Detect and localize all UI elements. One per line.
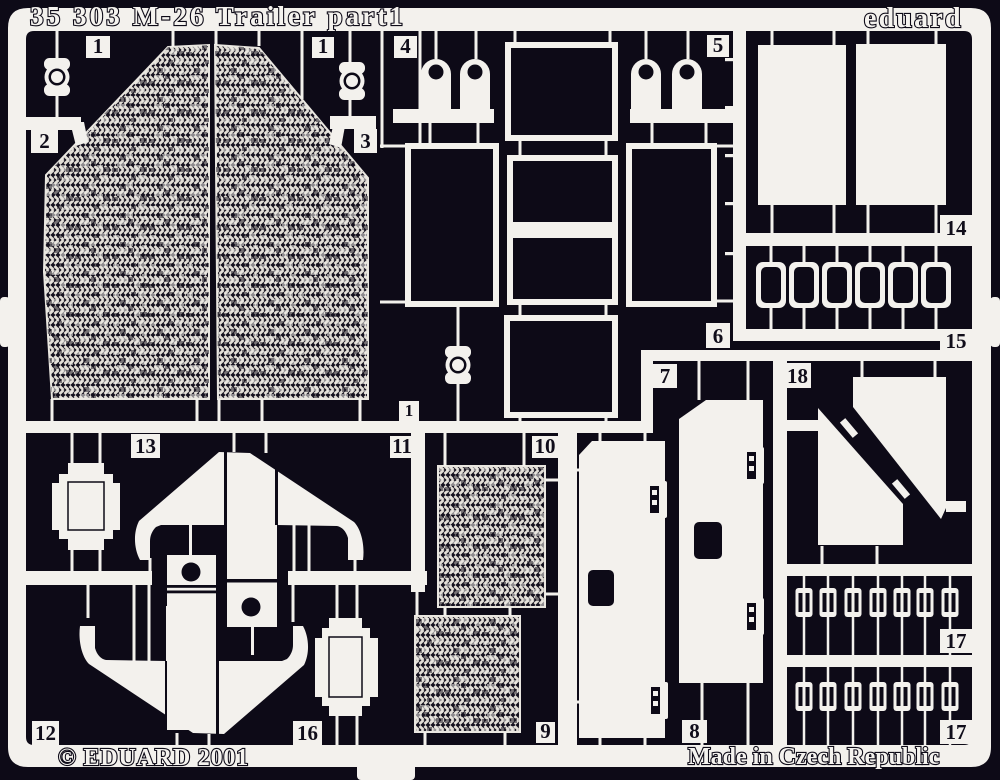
svg-text:18: 18: [787, 364, 808, 388]
svg-text:1: 1: [405, 401, 414, 420]
svg-text:13: 13: [135, 434, 156, 458]
svg-text:17: 17: [946, 629, 967, 653]
svg-text:15: 15: [946, 329, 967, 353]
svg-text:8: 8: [689, 719, 700, 743]
svg-text:10: 10: [535, 434, 556, 458]
svg-text:9: 9: [540, 719, 551, 743]
svg-text:5: 5: [713, 33, 724, 57]
svg-text:2: 2: [39, 129, 50, 153]
svg-text:3: 3: [360, 129, 371, 153]
svg-text:4: 4: [400, 34, 411, 58]
svg-text:17: 17: [946, 720, 967, 744]
svg-text:7: 7: [660, 364, 671, 388]
svg-text:35 303 M-26 Trailer part1: 35 303 M-26 Trailer part1: [30, 1, 406, 31]
svg-text:11: 11: [392, 434, 412, 458]
svg-text:1: 1: [93, 34, 104, 58]
svg-text:© EDUARD 2001: © EDUARD 2001: [58, 745, 249, 771]
svg-text:16: 16: [297, 721, 318, 745]
svg-text:14: 14: [946, 216, 968, 240]
svg-text:12: 12: [35, 721, 56, 745]
svg-text:6: 6: [713, 324, 724, 348]
svg-text:1: 1: [318, 34, 329, 58]
svg-text:Made in Czech Republic: Made in Czech Republic: [688, 744, 940, 770]
svg-text:eduard: eduard: [864, 3, 963, 34]
